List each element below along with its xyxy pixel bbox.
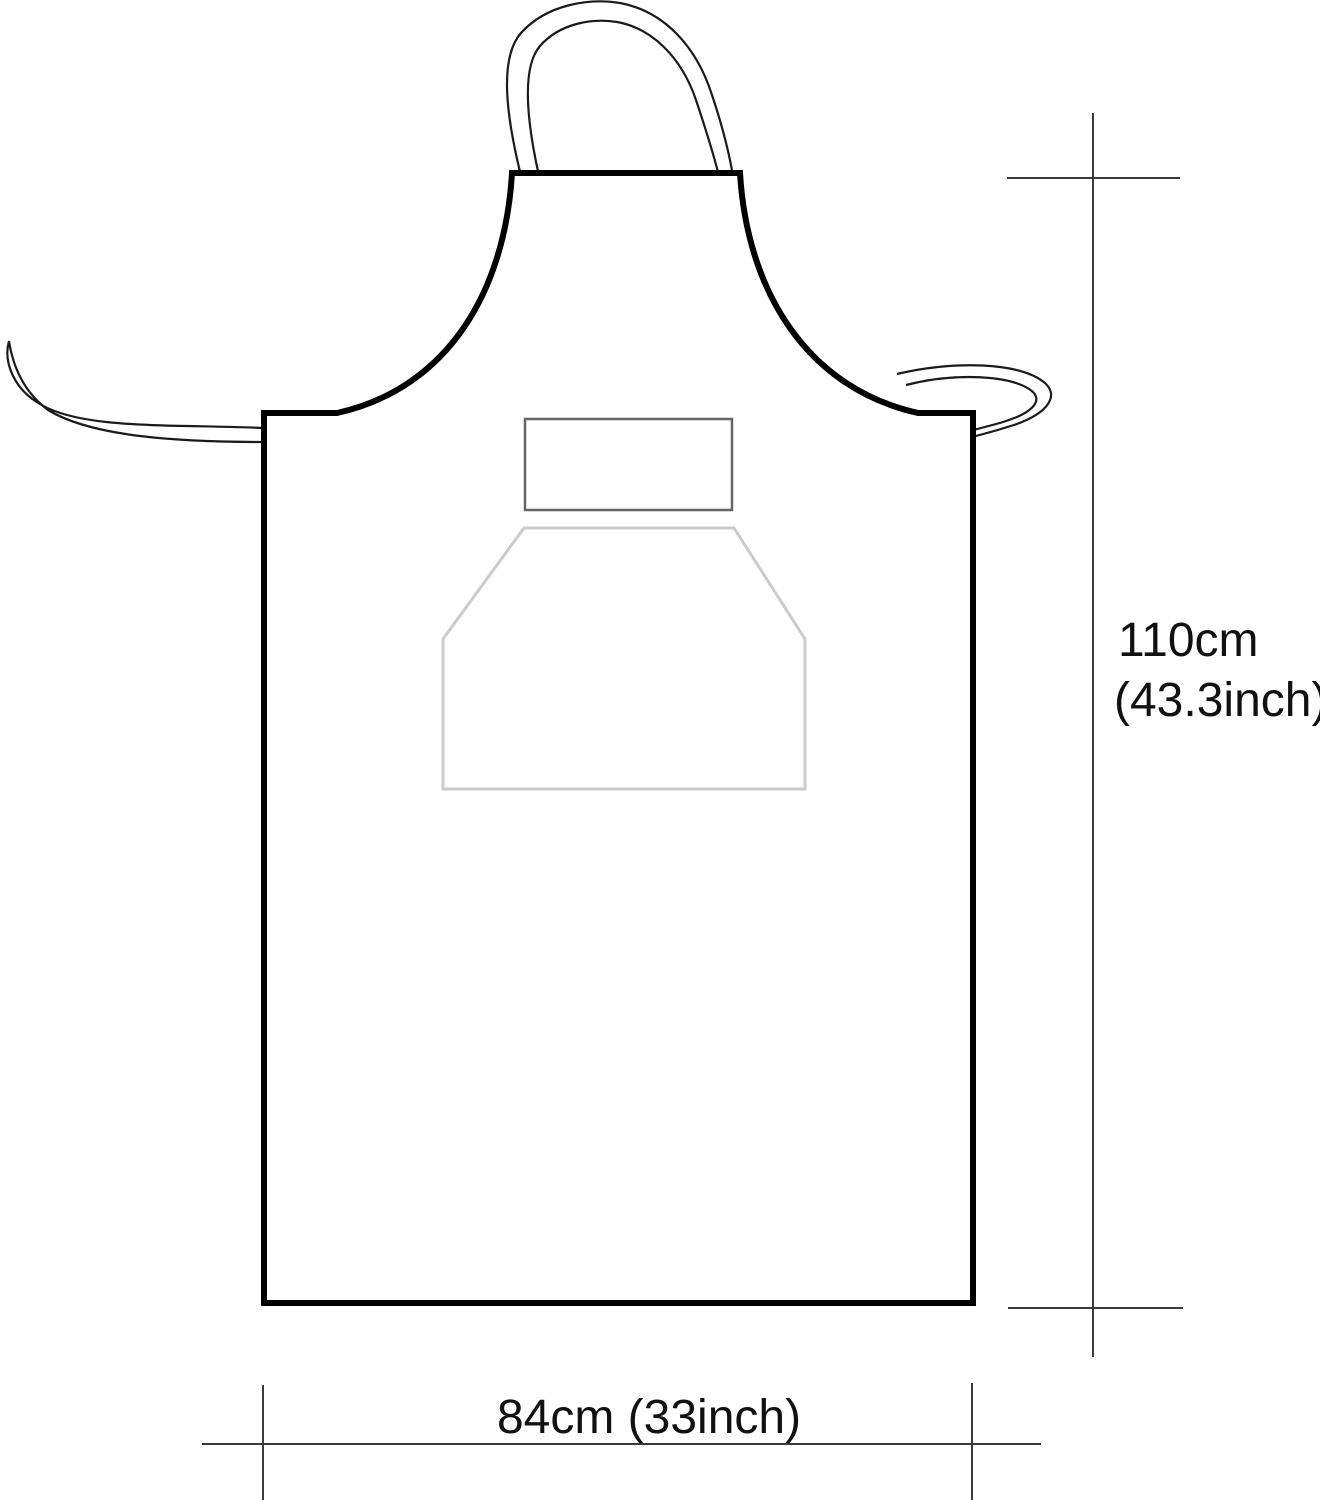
neck-strap-outer-edge bbox=[507, 1, 733, 176]
apron-dimension-diagram: 110cm (43.3inch) 84cm (33inch) bbox=[0, 0, 1320, 1500]
neck-strap-inner-edge bbox=[528, 21, 719, 176]
left-waist-tie bbox=[7, 341, 264, 442]
height-dimension-label-inch: (43.3inch) bbox=[1114, 674, 1320, 727]
diagram-canvas: 110cm (43.3inch) 84cm (33inch) bbox=[0, 0, 1320, 1500]
neck-strap bbox=[507, 1, 733, 176]
width-dimension-label: 84cm (33inch) bbox=[497, 1391, 801, 1444]
height-dimension-label-cm: 110cm bbox=[1118, 614, 1259, 667]
height-dimension bbox=[1007, 113, 1183, 1357]
apron-outline bbox=[264, 173, 973, 1303]
